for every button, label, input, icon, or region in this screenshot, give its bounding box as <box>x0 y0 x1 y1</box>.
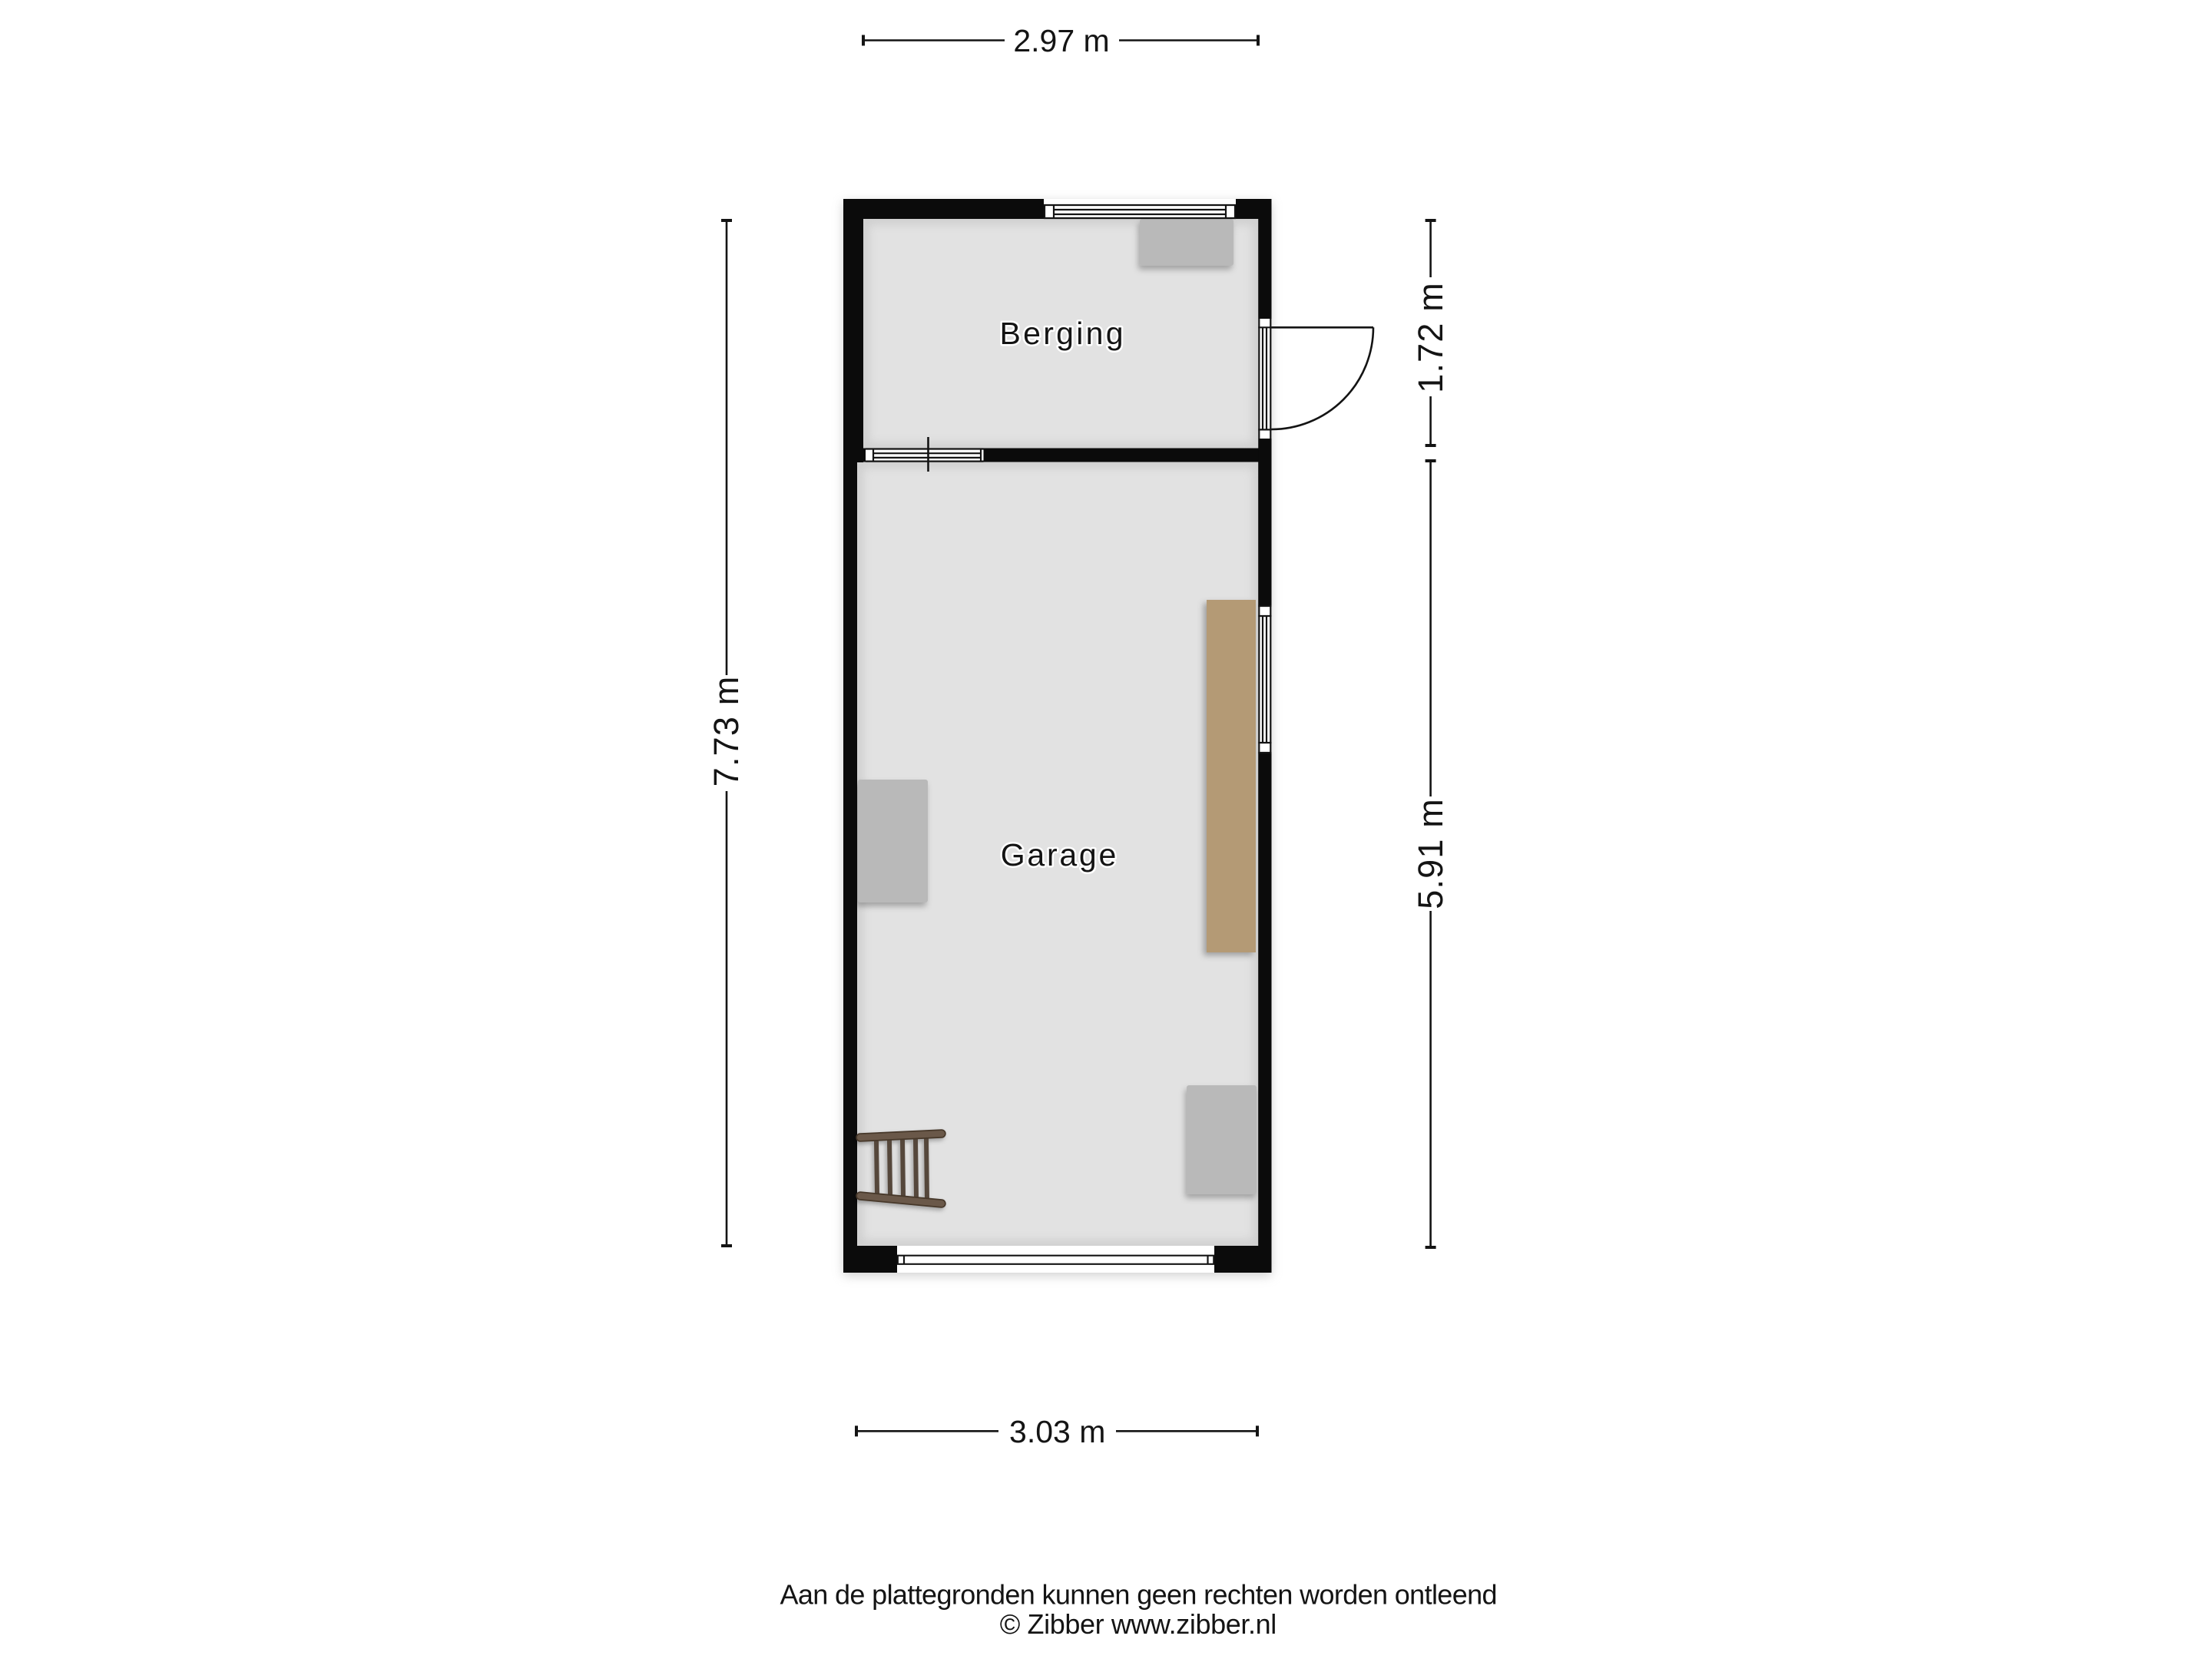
svg-text:7.73 m: 7.73 m <box>707 677 746 787</box>
svg-text:5.91 m: 5.91 m <box>1411 799 1450 909</box>
svg-text:2.97 m: 2.97 m <box>1013 23 1109 58</box>
svg-text:3.03 m: 3.03 m <box>1009 1414 1105 1449</box>
svg-text:Aan de plattegronden kunnen ge: Aan de plattegronden kunnen geen rechten… <box>780 1579 1498 1611</box>
svg-text:© Zibber www.zibber.nl: © Zibber www.zibber.nl <box>1000 1608 1277 1640</box>
svg-text:1.72 m: 1.72 m <box>1411 283 1450 393</box>
